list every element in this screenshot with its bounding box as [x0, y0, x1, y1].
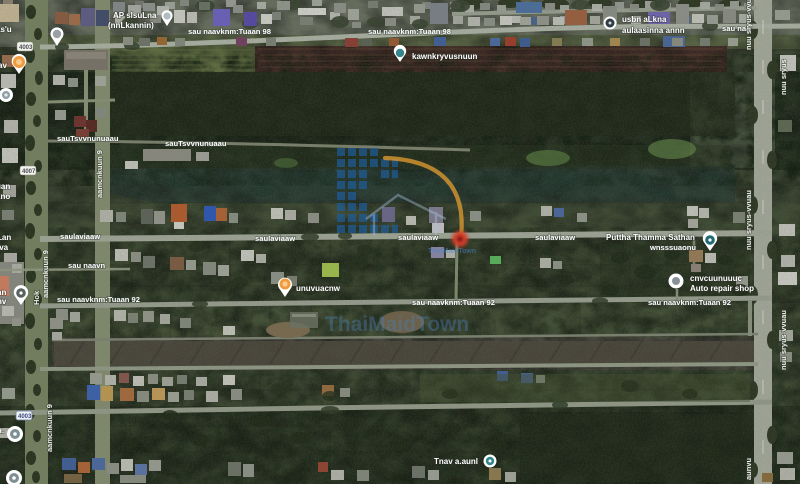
svg-text:AP slsuLna: AP slsuLna	[113, 11, 157, 20]
svg-text:4007: 4007	[22, 169, 36, 175]
svg-text:aamcnkuun 9: aamcnkuun 9	[41, 250, 50, 298]
svg-text:Tnav a.aunl: Tnav a.aunl	[434, 457, 478, 466]
svg-text:sauTsvvnunuaau: sauTsvvnunuaau	[165, 139, 227, 148]
svg-text:av: av	[0, 61, 7, 70]
svg-text:sau naavknm:Tuaan 98: sau naavknm:Tuaan 98	[368, 27, 451, 36]
svg-text:4003: 4003	[19, 45, 33, 51]
svg-text:nv: nv	[0, 297, 7, 306]
svg-text:an: an	[0, 288, 6, 297]
svg-text:aamcnkuun 9: aamcnkuun 9	[95, 150, 104, 198]
svg-text:uan: uan	[0, 182, 10, 191]
svg-text:sau naavknm:Tuaan 92: sau naavknm:Tuaan 92	[648, 298, 731, 307]
svg-text:kawnkryvusnuun: kawnkryvusnuun	[412, 52, 477, 61]
svg-text:u.: u.	[0, 426, 4, 435]
svg-text:sau naavknm:Tuaan 98: sau naavknm:Tuaan 98	[188, 27, 271, 36]
svg-text:sauTsvvnunuaau: sauTsvvnunuaau	[57, 134, 119, 143]
svg-text:kno: kno	[0, 192, 10, 201]
svg-text:Puttha Thamma Sathan: Puttha Thamma Sathan	[606, 233, 695, 242]
svg-text:aamcnkuun 9: aamcnkuun 9	[45, 404, 54, 452]
svg-text:Auto repair shop: Auto repair shop	[690, 284, 754, 293]
svg-text:nuu sryus-vvuau: nuu sryus-vvuau	[744, 0, 753, 50]
svg-text:as'u: as'u	[0, 25, 12, 34]
svg-text:saulaviaaw: saulaviaaw	[255, 234, 295, 243]
svg-text:(nnLkannin): (nnLkannin)	[108, 21, 154, 30]
svg-text:cnvcuunuuuc: cnvcuunuuuc	[690, 274, 743, 283]
svg-text:Hok: Hok	[32, 290, 41, 305]
svg-text:saulaviaaw: saulaviaaw	[535, 233, 575, 242]
svg-text:nuu sryus-vvuau: nuu sryus-vvuau	[779, 310, 788, 370]
svg-text:sau naavn: sau naavn	[68, 261, 106, 270]
svg-text:unuvuacnw: unuvuacnw	[296, 284, 341, 293]
svg-text:wnsssuaonu: wnsssuaonu	[649, 243, 696, 252]
svg-text:Lan: Lan	[0, 233, 11, 242]
svg-text:ThaiMaidTown: ThaiMaidTown	[325, 313, 469, 336]
svg-text:4003: 4003	[18, 414, 32, 420]
svg-text:aulaasinna annn: aulaasinna annn	[622, 26, 685, 35]
svg-text:saulaviaaw: saulaviaaw	[60, 232, 100, 241]
svg-text:nuu sryus-vvuau: nuu sryus-vvuau	[744, 190, 753, 250]
svg-text:aunvu: aunvu	[744, 457, 753, 480]
svg-text:nuu sryus: nuu sryus	[779, 59, 788, 95]
svg-text:ThaiMaidTown: ThaiMaidTown	[428, 248, 476, 255]
svg-text:usbn aLkna: usbn aLkna	[622, 15, 667, 24]
svg-text:sau naavknm:Tuaan 92: sau naavknm:Tuaan 92	[57, 295, 140, 304]
svg-text:iva: iva	[0, 243, 9, 252]
svg-text:saulaviaaw: saulaviaaw	[398, 233, 438, 242]
svg-text:sau naavknm:Tuaan 92: sau naavknm:Tuaan 92	[412, 298, 495, 307]
